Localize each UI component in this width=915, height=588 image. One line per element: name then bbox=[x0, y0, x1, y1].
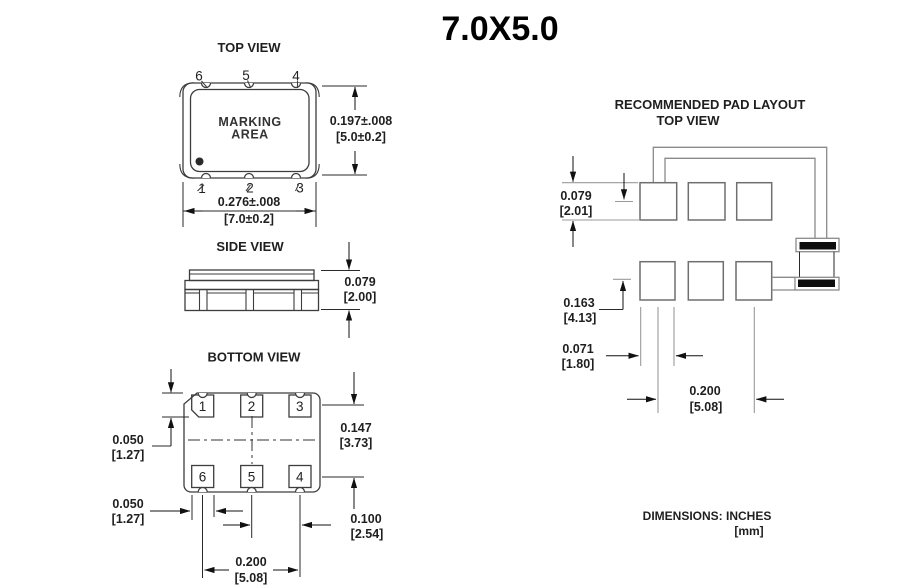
units-line2: [mm] bbox=[734, 524, 763, 538]
side-dim-in: 0.079 bbox=[344, 275, 375, 289]
bottom-view-dim-pitch-small: 0.100 [2.54] bbox=[223, 495, 383, 541]
dim-pad-height-mm: [1.27] bbox=[112, 448, 145, 462]
side-view-standoffs bbox=[185, 290, 319, 311]
dim-pitch-large-in: 0.200 bbox=[235, 555, 266, 569]
dim-span-mm: [3.73] bbox=[340, 436, 373, 450]
dim-pad-height-in: 0.050 bbox=[112, 433, 143, 447]
side-view-body bbox=[185, 281, 319, 290]
bottom-pad-5-label: 5 bbox=[248, 470, 256, 485]
side-dim-mm: [2.00] bbox=[344, 290, 377, 304]
pad-layout-dim-pad-height: 0.079 [2.01] bbox=[560, 156, 640, 247]
bottom-view-dim-pad-height: 0.050 [1.27] bbox=[112, 369, 189, 462]
side-view-base bbox=[185, 290, 319, 311]
bottom-view-dim-span: 0.147 [3.73] bbox=[322, 372, 372, 509]
bottom-pad-3-label: 3 bbox=[296, 399, 304, 414]
top-view-pin-3: 3 bbox=[296, 181, 304, 196]
top-view-pin-4: 4 bbox=[292, 69, 300, 84]
dim-pad-width-in: 0.050 bbox=[112, 497, 143, 511]
page-title: 7.0X5.0 bbox=[441, 10, 558, 48]
pad-layout-subtitle: TOP VIEW bbox=[656, 113, 720, 128]
dim-width-in: 0.276±.008 bbox=[218, 195, 281, 209]
pad-layout-dim-pad-width: 0.071 [1.80] bbox=[562, 342, 703, 371]
bypass-capacitor bbox=[772, 238, 839, 290]
pad-layout-title: RECOMMENDED PAD LAYOUT bbox=[615, 97, 806, 112]
bottom-pad-6-label: 6 bbox=[199, 470, 207, 485]
layout-dim-pad-width-in: 0.071 bbox=[562, 342, 593, 356]
top-view-pin-2: 2 bbox=[246, 181, 254, 196]
dim-pitch-small-in: 0.100 bbox=[350, 512, 381, 526]
layout-dim-row-pitch-in: 0.163 bbox=[563, 296, 594, 310]
layout-pad-bottom-center bbox=[688, 262, 723, 300]
dim-pitch-large-mm: [5.08] bbox=[235, 571, 268, 585]
top-view-dim-height: 0.197±.008 [5.0±0.2] bbox=[322, 86, 392, 175]
dim-pad-width-mm: [1.27] bbox=[112, 512, 145, 526]
pin1-indicator-dot bbox=[196, 158, 204, 166]
bottom-view: BOTTOM VIEW 1 2 3 6 5 4 bbox=[112, 350, 384, 586]
bottom-pad-2-label: 2 bbox=[248, 399, 256, 414]
side-view-dim-height: 0.079 [2.00] bbox=[321, 242, 376, 338]
pad-layout-dim-pitch: 0.200 [5.08] bbox=[627, 384, 784, 414]
units-line1: DIMENSIONS: INCHES bbox=[643, 509, 772, 523]
bottom-view-label: BOTTOM VIEW bbox=[208, 350, 302, 365]
top-view-pin-1: 1 bbox=[198, 181, 206, 196]
marking-area-line2: AREA bbox=[231, 128, 268, 142]
side-view-lid bbox=[190, 270, 315, 281]
top-view-pin-6: 6 bbox=[195, 69, 203, 84]
layout-pad-top-left bbox=[640, 183, 677, 220]
bottom-pad-1-label: 1 bbox=[199, 399, 207, 414]
dim-pitch-small-mm: [2.54] bbox=[351, 527, 384, 541]
layout-dim-pitch-in: 0.200 bbox=[689, 384, 720, 398]
top-view-label: TOP VIEW bbox=[217, 40, 281, 55]
layout-pad-top-right bbox=[737, 183, 772, 220]
layout-pad-bottom-right bbox=[736, 262, 772, 300]
layout-pad-bottom-left bbox=[640, 262, 675, 300]
pad-layout-dim-row-pitch: 0.163 [4.13] bbox=[563, 279, 631, 325]
side-view: SIDE VIEW 0.079 [2.00] bbox=[185, 239, 376, 338]
layout-dim-pad-width-mm: [1.80] bbox=[562, 357, 595, 371]
side-view-label: SIDE VIEW bbox=[216, 239, 284, 254]
bottom-pad-4-label: 4 bbox=[296, 470, 304, 485]
layout-pad-top-center bbox=[688, 183, 725, 220]
layout-dim-pad-height-in: 0.079 bbox=[560, 189, 591, 203]
layout-dim-pitch-mm: [5.08] bbox=[690, 400, 723, 414]
capacitor-top-electrode bbox=[800, 242, 837, 250]
dim-height-mm: [5.0±0.2] bbox=[336, 130, 386, 144]
pad-layout: RECOMMENDED PAD LAYOUT TOP VIEW bbox=[560, 97, 839, 414]
dim-height-in: 0.197±.008 bbox=[330, 114, 393, 128]
units-note: DIMENSIONS: INCHES [mm] bbox=[643, 509, 772, 538]
capacitor-bottom-electrode bbox=[798, 280, 835, 288]
dim-span-in: 0.147 bbox=[340, 421, 371, 435]
top-view: TOP VIEW bbox=[180, 40, 392, 227]
dim-width-mm: [7.0±0.2] bbox=[224, 212, 274, 226]
top-view-pin-5: 5 bbox=[242, 68, 250, 83]
layout-dim-row-pitch-mm: [4.13] bbox=[564, 311, 597, 325]
bottom-view-dim-pad-width: 0.050 [1.27] bbox=[112, 495, 243, 526]
layout-dim-pad-height-mm: [2.01] bbox=[560, 204, 593, 218]
drawing-sheet: 7.0X5.0 TOP VIEW bbox=[0, 0, 915, 588]
